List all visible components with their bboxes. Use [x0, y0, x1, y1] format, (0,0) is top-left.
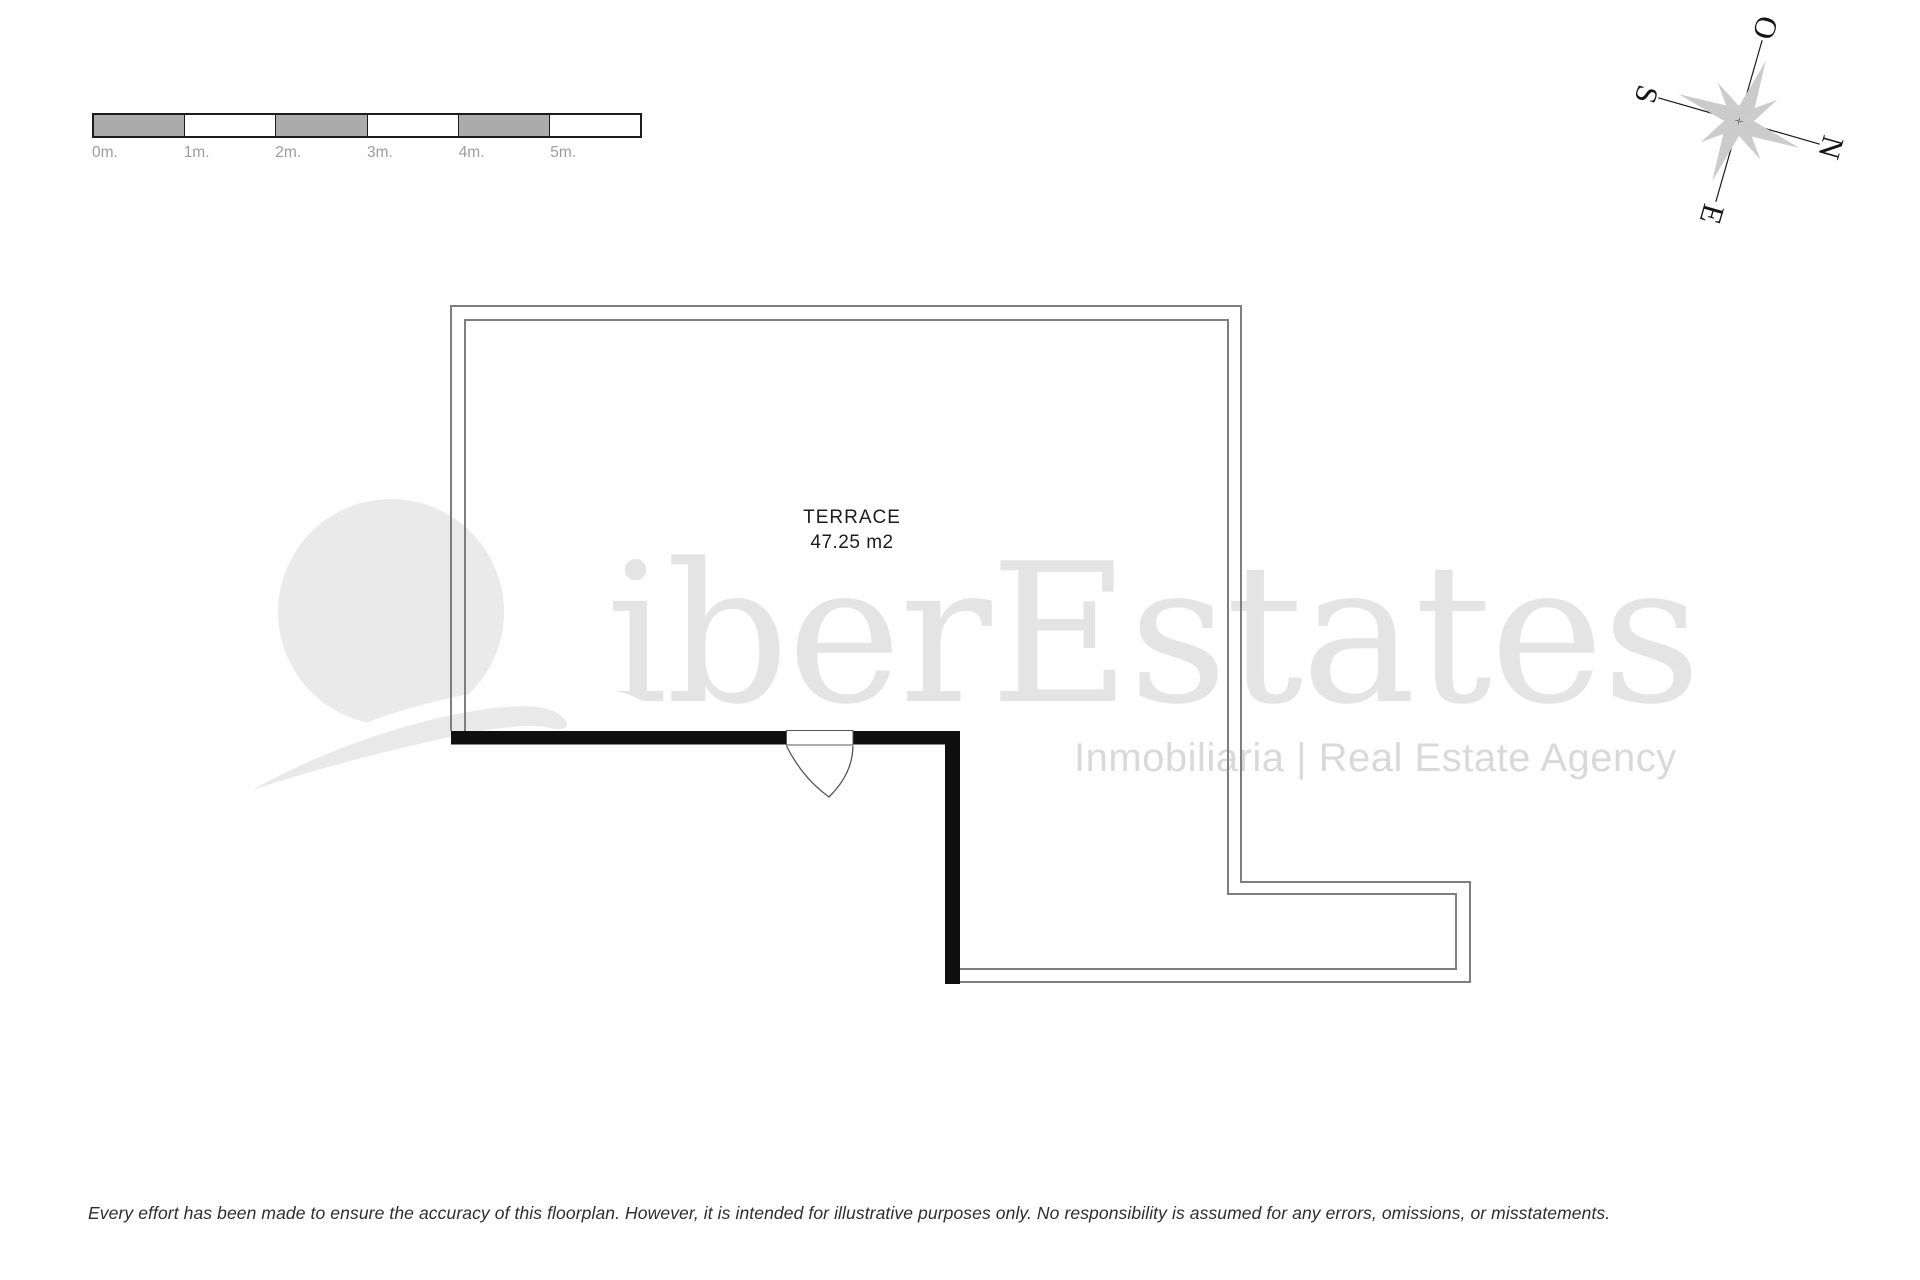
door-opening — [787, 731, 854, 746]
terrace-outline-inner — [465, 320, 1456, 969]
door-swing — [787, 746, 854, 797]
compass-letter-west: O — [1746, 12, 1786, 43]
scale-segment — [367, 115, 458, 136]
room-label-block: TERRACE 47.25 m2 — [702, 507, 1002, 554]
compass-short-blades — [1694, 76, 1785, 167]
scale-label: 3m. — [367, 144, 393, 162]
scale-segment — [549, 115, 640, 136]
scale-segment — [275, 115, 366, 136]
room-label: TERRACE — [702, 507, 1002, 529]
disclaimer-text: Every effort has been made to ensure the… — [88, 1203, 1610, 1224]
scale-bar — [92, 113, 642, 138]
compass-letter-south: S — [1628, 81, 1666, 107]
scale-label: 5m. — [550, 144, 576, 162]
scale-label: 4m. — [459, 144, 485, 162]
compass-letter-north: N — [1811, 132, 1851, 163]
wall-vertical-segment — [945, 731, 960, 984]
compass-rose-icon: N S E O — [1601, 0, 1878, 255]
floorplan-page: iberEstates Inmobiliaria | Real Estate A… — [0, 0, 1920, 1280]
wall-left-segment — [451, 731, 787, 745]
compass-letter-east: E — [1693, 200, 1732, 228]
scale-label: 2m. — [275, 144, 301, 162]
room-area: 47.25 m2 — [702, 532, 1002, 554]
brand-logo-icon — [243, 499, 673, 878]
scale-label: 1m. — [184, 144, 210, 162]
scale-segment — [94, 115, 184, 136]
logo-ball — [278, 499, 504, 725]
scale-label: 0m. — [92, 144, 118, 162]
scale-segment — [458, 115, 549, 136]
wall-right-segment — [853, 731, 960, 745]
terrace-outline-outer — [451, 306, 1470, 982]
scale-segment — [184, 115, 275, 136]
floorplan-drawing: N S E O — [0, 0, 1920, 1280]
